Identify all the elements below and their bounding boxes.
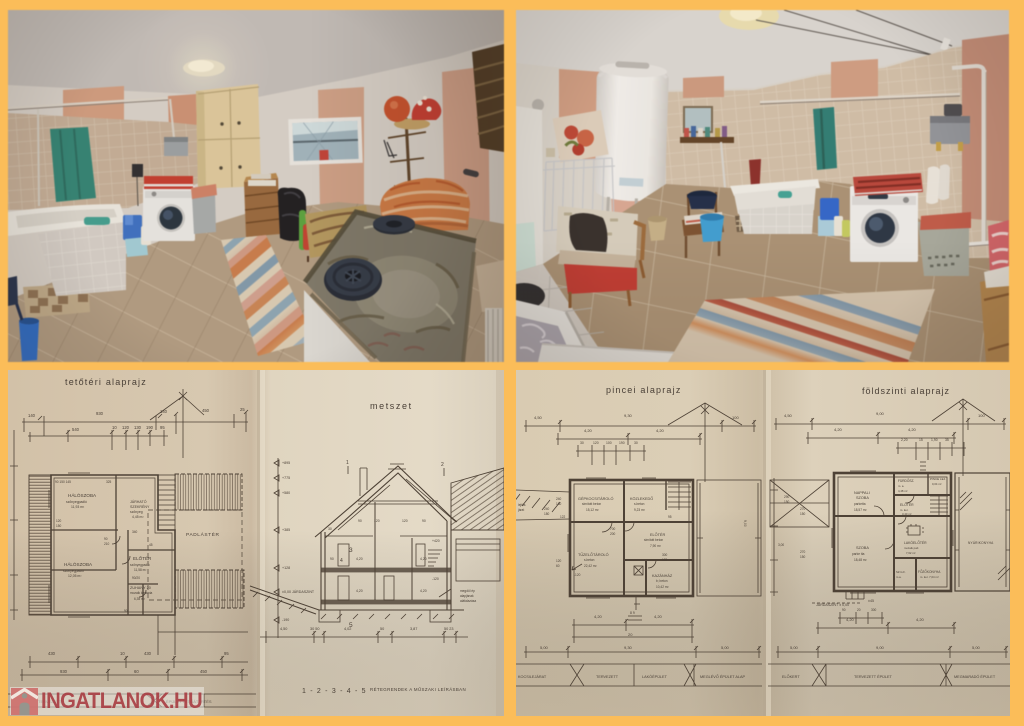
svg-text:150: 150 (800, 512, 806, 516)
svg-text:12,05 m²: 12,05 m² (68, 574, 82, 578)
svg-text:mozaik parl.: mozaik parl. (904, 546, 919, 550)
svg-text:325: 325 (106, 480, 112, 484)
svg-text:4,48 m²: 4,48 m² (898, 489, 908, 493)
svg-text:120: 120 (374, 519, 380, 523)
svg-text:5,00: 5,00 (540, 645, 549, 650)
svg-text:simított beton: simított beton (644, 538, 663, 542)
svg-text:±0,00 JÁRDASZINT: ±0,00 JÁRDASZINT (282, 590, 315, 594)
svg-text:+420: +420 (432, 539, 440, 543)
svg-text:+775: +775 (282, 476, 290, 480)
svg-text:szőnyeg: szőnyeg (130, 510, 143, 514)
svg-text:ELŐTÉR: ELŐTÉR (900, 502, 914, 507)
svg-text:430: 430 (48, 651, 56, 656)
svg-text:+895: +895 (282, 461, 290, 465)
svg-text:9,00: 9,00 (743, 520, 747, 527)
svg-text:LAKÓÉPÜLET: LAKÓÉPÜLET (642, 674, 668, 679)
svg-text:50 23: 50 23 (444, 627, 454, 631)
svg-text:11,58 m²: 11,58 m² (134, 568, 146, 572)
svg-text:TŰZELŐTÁROLÓ: TŰZELŐTÁROLÓ (578, 552, 609, 557)
svg-text:10: 10 (112, 425, 117, 430)
svg-text:FÜRDŐSZ.: FÜRDŐSZ. (898, 478, 914, 483)
svg-text:3,87: 3,87 (410, 627, 417, 631)
svg-text:290: 290 (784, 495, 790, 499)
svg-text:HÁLÓSZOBA: HÁLÓSZOBA (68, 492, 97, 498)
svg-text:122: 122 (560, 515, 566, 519)
svg-text:PADLÁSTÉR: PADLÁSTÉR (186, 531, 220, 538)
svg-text:-190: -190 (282, 618, 289, 622)
svg-text:930: 930 (60, 669, 68, 674)
svg-text:4,20: 4,20 (420, 589, 427, 593)
svg-text:ELŐKERT: ELŐKERT (782, 674, 800, 679)
svg-text:simított beton: simított beton (582, 502, 601, 506)
svg-text:MEGMARADÓ ÉPÜLET: MEGMARADÓ ÉPÜLET (954, 674, 996, 679)
svg-text:20: 20 (857, 608, 861, 612)
svg-text:b; beton: b; beton (656, 579, 668, 583)
svg-text:5,00: 5,00 (721, 645, 730, 650)
svg-text:270: 270 (800, 507, 806, 511)
svg-text:190: 190 (619, 441, 625, 445)
svg-text:120: 120 (56, 519, 62, 523)
svg-text:120: 120 (593, 441, 599, 445)
svg-text:KÖZLEKEDŐ: KÖZLEKEDŐ (630, 496, 653, 501)
svg-text:4,20: 4,20 (584, 428, 593, 433)
svg-text:90 150 145: 90 150 145 (55, 480, 71, 484)
svg-text:60: 60 (556, 564, 560, 568)
svg-text:FŐZŐKONYHA: FŐZŐKONYHA (918, 569, 941, 574)
svg-text:SZOBA: SZOBA (856, 496, 869, 500)
svg-text:95: 95 (668, 515, 672, 519)
svg-text:450: 450 (202, 408, 210, 413)
svg-text:TERVEZETT ÉPÜLET: TERVEZETT ÉPÜLET (854, 674, 893, 679)
svg-text:aláfalazása: aláfalazása (460, 599, 476, 603)
svg-text:120: 120 (556, 559, 562, 563)
svg-text:1 - 2 - 3 - 4 - 5: 1 - 2 - 3 - 4 - 5 (302, 688, 367, 695)
svg-text:GÉPKOCSITÁROLÓ: GÉPKOCSITÁROLÓ (578, 496, 613, 501)
svg-text:4,20: 4,20 (908, 427, 917, 432)
svg-text:JÁRHATÓ: JÁRHATÓ (130, 499, 147, 504)
svg-text:100: 100 (606, 441, 612, 445)
svg-text:9,30: 9,30 (624, 645, 633, 650)
svg-text:8 9: 8 9 (630, 611, 635, 615)
svg-text:4,20: 4,20 (420, 557, 427, 561)
svg-text:ZUHANY 20: ZUHANY 20 (130, 586, 151, 590)
svg-text:210: 210 (104, 542, 110, 546)
svg-text:MEGLÉVŐ ÉPÜLET ALAP: MEGLÉVŐ ÉPÜLET ALAP (700, 674, 746, 679)
svg-text:18,48 m²: 18,48 m² (854, 558, 867, 562)
svg-text:4,20: 4,20 (656, 428, 665, 433)
svg-text:95: 95 (160, 425, 165, 430)
svg-text:340: 340 (132, 530, 138, 534)
svg-text:540: 540 (72, 427, 80, 432)
svg-text:pincei alaprajz: pincei alaprajz (606, 385, 682, 395)
svg-text:20: 20 (628, 632, 633, 637)
svg-text:1: 1 (346, 460, 349, 466)
svg-text:11,93 m²: 11,93 m² (71, 505, 85, 509)
svg-text:90: 90 (842, 608, 846, 612)
svg-text:130: 130 (134, 425, 142, 430)
svg-text:4,20: 4,20 (846, 617, 855, 622)
svg-text:alapjának: alapjának (460, 594, 474, 598)
svg-text:450: 450 (200, 669, 208, 674)
svg-text:15,12 m²: 15,12 m² (586, 508, 599, 512)
svg-text:30: 30 (580, 441, 584, 445)
svg-text:90: 90 (104, 537, 108, 541)
svg-text:4,50: 4,50 (280, 627, 287, 631)
svg-text:s.beton: s.beton (634, 502, 645, 506)
svg-text:SZ.G.F.: SZ.G.F. (896, 570, 906, 574)
svg-text:180: 180 (544, 512, 550, 516)
svg-text:±45: ±45 (868, 599, 874, 603)
svg-text:m.a.: m.a. (896, 575, 902, 579)
svg-text:240: 240 (556, 497, 562, 501)
svg-text:90: 90 (358, 519, 362, 523)
svg-text:22,42 m²: 22,42 m² (584, 564, 597, 568)
svg-text:90: 90 (422, 519, 426, 523)
svg-text:parketta: parketta (854, 502, 866, 506)
svg-text:300: 300 (662, 553, 668, 557)
svg-text:140: 140 (28, 413, 36, 418)
svg-text:6,35 m²: 6,35 m² (134, 597, 145, 601)
svg-text:+580: +580 (282, 491, 290, 495)
svg-text:szőnyegpadló: szőnyegpadló (130, 563, 150, 567)
svg-text:-120: -120 (574, 573, 581, 577)
svg-text:SZEKRÉNY: SZEKRÉNY (130, 504, 150, 509)
svg-text:2,20: 2,20 (901, 438, 908, 442)
svg-text:35: 35 (945, 438, 949, 442)
svg-text:4: 4 (340, 558, 343, 564)
svg-text:metszet: metszet (370, 401, 413, 411)
svg-text:150: 150 (800, 555, 806, 559)
svg-text:90/20: 90/20 (132, 576, 140, 580)
svg-text:7,90 m²: 7,90 m² (650, 544, 661, 548)
svg-text:4,45 m²: 4,45 m² (132, 515, 144, 519)
svg-text:4,20: 4,20 (654, 614, 663, 619)
svg-text:járat: járat (517, 508, 524, 512)
svg-text:180: 180 (556, 502, 562, 506)
svg-text:30 50: 30 50 (310, 627, 320, 631)
svg-text:NYÁRIKONYHA: NYÁRIKONYHA (968, 541, 994, 545)
svg-text:LAKÓELŐTÉR: LAKÓELŐTÉR (904, 540, 927, 545)
svg-text:tetőtéri alaprajz: tetőtéri alaprajz (65, 377, 147, 387)
svg-text:10,42 m²: 10,42 m² (656, 585, 669, 589)
svg-text:200: 200 (610, 532, 616, 536)
svg-text:1,90: 1,90 (931, 438, 938, 442)
svg-text:190: 190 (146, 425, 154, 430)
svg-text:240: 240 (544, 507, 550, 511)
svg-text:18,57 m²: 18,57 m² (854, 508, 867, 512)
svg-text:4,20: 4,20 (916, 617, 925, 622)
svg-text:60: 60 (134, 669, 139, 674)
svg-text:3,00: 3,00 (778, 543, 784, 547)
svg-text:7,62 m²: 7,62 m² (906, 551, 916, 555)
svg-text:PINCE LEJ.: PINCE LEJ. (930, 477, 946, 481)
svg-text:150: 150 (784, 500, 790, 504)
svg-text:300: 300 (871, 608, 877, 612)
svg-text:270: 270 (800, 550, 806, 554)
svg-text:földszinti alaprajz: földszinti alaprajz (862, 386, 950, 396)
svg-text:mozaik kerámia: mozaik kerámia (130, 591, 153, 595)
svg-text:lejtős: lejtős (518, 503, 526, 507)
svg-text:TERVEZETT: TERVEZETT (596, 675, 619, 679)
svg-text:700: 700 (610, 527, 616, 531)
svg-text:3: 3 (349, 547, 353, 554)
svg-text:KAZÁNHÁZ: KAZÁNHÁZ (652, 574, 673, 578)
svg-text:5,00: 5,00 (790, 645, 799, 650)
svg-text:95: 95 (224, 651, 229, 656)
svg-text:4,20: 4,20 (356, 557, 363, 561)
svg-text:50: 50 (380, 627, 384, 631)
svg-text:4,50: 4,50 (534, 415, 543, 420)
svg-text:megdöl ép: megdöl ép (460, 589, 475, 593)
svg-text:30: 30 (634, 441, 638, 445)
svg-text:9,23 m²: 9,23 m² (634, 508, 645, 512)
svg-text:+385: +385 (282, 528, 290, 532)
svg-text:SZOBA: SZOBA (856, 546, 869, 550)
svg-text:KOCSILEJÁRAT: KOCSILEJÁRAT (518, 675, 547, 679)
svg-text:s.beton: s.beton (584, 558, 595, 562)
svg-text:90: 90 (330, 557, 334, 561)
svg-text:100: 100 (732, 415, 739, 420)
svg-text:0,04 m²: 0,04 m² (932, 482, 942, 486)
svg-text:szőnyegpadló: szőnyegpadló (66, 500, 87, 504)
svg-text:5,00: 5,00 (972, 645, 981, 650)
svg-text:90: 90 (124, 609, 128, 613)
svg-text:150: 150 (56, 524, 62, 528)
svg-text:10: 10 (120, 651, 125, 656)
svg-text:45: 45 (149, 543, 153, 547)
svg-text:szőnyegpadló: szőnyegpadló (63, 569, 84, 573)
svg-text:JÁRDASZINT ± 0,00: JÁRDASZINT ± 0,00 (816, 603, 849, 607)
svg-text:4,02: 4,02 (344, 627, 351, 631)
svg-text:HÁLÓSZOBA: HÁLÓSZOBA (64, 561, 93, 567)
svg-text:-120: -120 (432, 577, 439, 581)
svg-text:120: 120 (122, 425, 130, 430)
svg-text:NAPPALI: NAPPALI (854, 491, 870, 495)
svg-text:30: 30 (328, 527, 332, 531)
svg-text:430: 430 (144, 651, 152, 656)
svg-text:139: 139 (662, 558, 668, 562)
svg-text:140: 140 (160, 409, 168, 414)
svg-text:4,20: 4,20 (834, 427, 843, 432)
svg-text:ELŐTÉR: ELŐTÉR (650, 532, 665, 537)
svg-text:+128: +128 (282, 566, 290, 570)
svg-text:4,20: 4,20 (594, 614, 603, 619)
svg-text:9,00: 9,00 (876, 411, 885, 416)
svg-text:parke tta: parke tta (852, 552, 865, 556)
svg-text:m. a.: m. a. (898, 484, 904, 488)
svg-text:RÉTEGRENDEK A MŰSZAKI LEÍRÁ: RÉTEGRENDEK A MŰSZAKI LEÍRÁSBAN (370, 687, 466, 692)
svg-text:100: 100 (978, 413, 985, 418)
svg-text:9,00: 9,00 (876, 645, 885, 650)
svg-text:15: 15 (919, 438, 923, 442)
svg-text:4,20: 4,20 (356, 589, 363, 593)
svg-text:m. ker. 7,04 m²: m. ker. 7,04 m² (920, 575, 939, 579)
svg-text:ELŐTÉR: ELŐTÉR (133, 555, 152, 561)
svg-text:930: 930 (96, 411, 104, 416)
svg-text:3,40 m²: 3,40 m² (902, 512, 912, 516)
svg-text:2: 2 (441, 462, 444, 468)
svg-text:25: 25 (240, 407, 245, 412)
svg-text:4,50: 4,50 (784, 413, 793, 418)
svg-text:9,30: 9,30 (624, 413, 633, 418)
svg-text:120: 120 (402, 519, 408, 523)
